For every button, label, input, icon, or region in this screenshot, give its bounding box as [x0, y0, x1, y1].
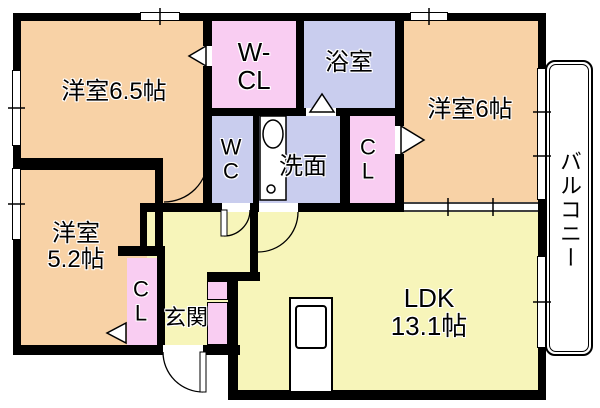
label-western-5-2: 洋室 5.2帖 — [47, 221, 104, 273]
label-western-6: 洋室6帖 — [427, 97, 512, 123]
window-left-western52 — [12, 168, 21, 240]
floorplan-canvas: 洋室6.5帖 W- CL 浴室 洋室6帖 バルコニー W C 洗面 C L 洋室… — [0, 0, 600, 408]
wall-wc-washroom — [253, 116, 259, 203]
window-top-western65 — [140, 12, 180, 21]
label-western-6-5: 洋室6.5帖 — [61, 79, 166, 105]
wall-hall-top-c — [298, 203, 404, 212]
shoe-cabinet-lower — [207, 302, 228, 345]
label-western52-line1: 洋室 — [47, 221, 104, 247]
bath-door-opening — [306, 108, 336, 116]
label-ldk-line1: LDK — [391, 284, 468, 312]
label-closet-east-line1: C — [360, 135, 376, 159]
label-closet-west: C L — [133, 277, 149, 325]
wall-ldk-left — [228, 272, 238, 390]
wall-bottom-left — [13, 345, 163, 355]
label-closet-east-line2: L — [360, 159, 376, 183]
wall-wcl-left-lower — [203, 66, 212, 203]
wall-wcl-left-upper — [203, 21, 212, 46]
shoe-cabinet-upper — [207, 281, 228, 300]
label-bathroom: 浴室 — [325, 50, 373, 76]
wall-hall-top-a — [140, 203, 222, 212]
window-top-western6 — [410, 12, 448, 21]
window-left-western65 — [12, 70, 21, 146]
wcl-door-opening — [203, 46, 212, 66]
label-wc-line1: W — [221, 135, 242, 159]
corridor-floor — [160, 158, 203, 204]
wall-bottom-ldk — [228, 390, 546, 400]
label-wcl-line1: W- — [237, 38, 270, 66]
wall-top — [13, 13, 546, 21]
label-closet-east: C L — [360, 135, 376, 183]
outside-area — [13, 355, 228, 408]
wall-under-bath — [336, 108, 404, 116]
entrance-door-opening — [163, 345, 203, 355]
label-western52-line2: 5.2帖 — [47, 247, 104, 273]
label-walk-in-closet: W- CL — [237, 38, 270, 94]
wall-closet-east-right-lower — [395, 154, 404, 203]
label-wcl-line2: CL — [237, 66, 270, 94]
washroom-door-opening — [259, 203, 298, 212]
wc-door-opening — [222, 203, 250, 212]
wall-between-western-rooms — [13, 158, 163, 170]
wall-closet-west-right — [157, 246, 165, 345]
wall-closet-east-right-upper — [395, 108, 404, 126]
label-wc-line2: C — [221, 159, 242, 183]
wall-hall-ldk-stub — [250, 203, 258, 272]
label-washroom: 洗面 — [279, 154, 327, 180]
label-toilet: W C — [221, 135, 242, 183]
label-closet-west-line1: C — [133, 277, 149, 301]
wall-washroom-closet — [340, 116, 350, 203]
wall-bath-western6 — [395, 21, 404, 108]
wall-under-wcl — [203, 108, 306, 116]
label-closet-west-line2: L — [133, 301, 149, 325]
wall-wcl-bath — [296, 21, 304, 108]
label-entrance: 玄関 — [164, 306, 208, 330]
label-ldk: LDK 13.1帖 — [391, 284, 468, 340]
label-balcony: バルコニー — [558, 150, 580, 270]
label-ldk-line2: 13.1帖 — [391, 312, 468, 340]
western6-door-opening — [395, 126, 404, 154]
